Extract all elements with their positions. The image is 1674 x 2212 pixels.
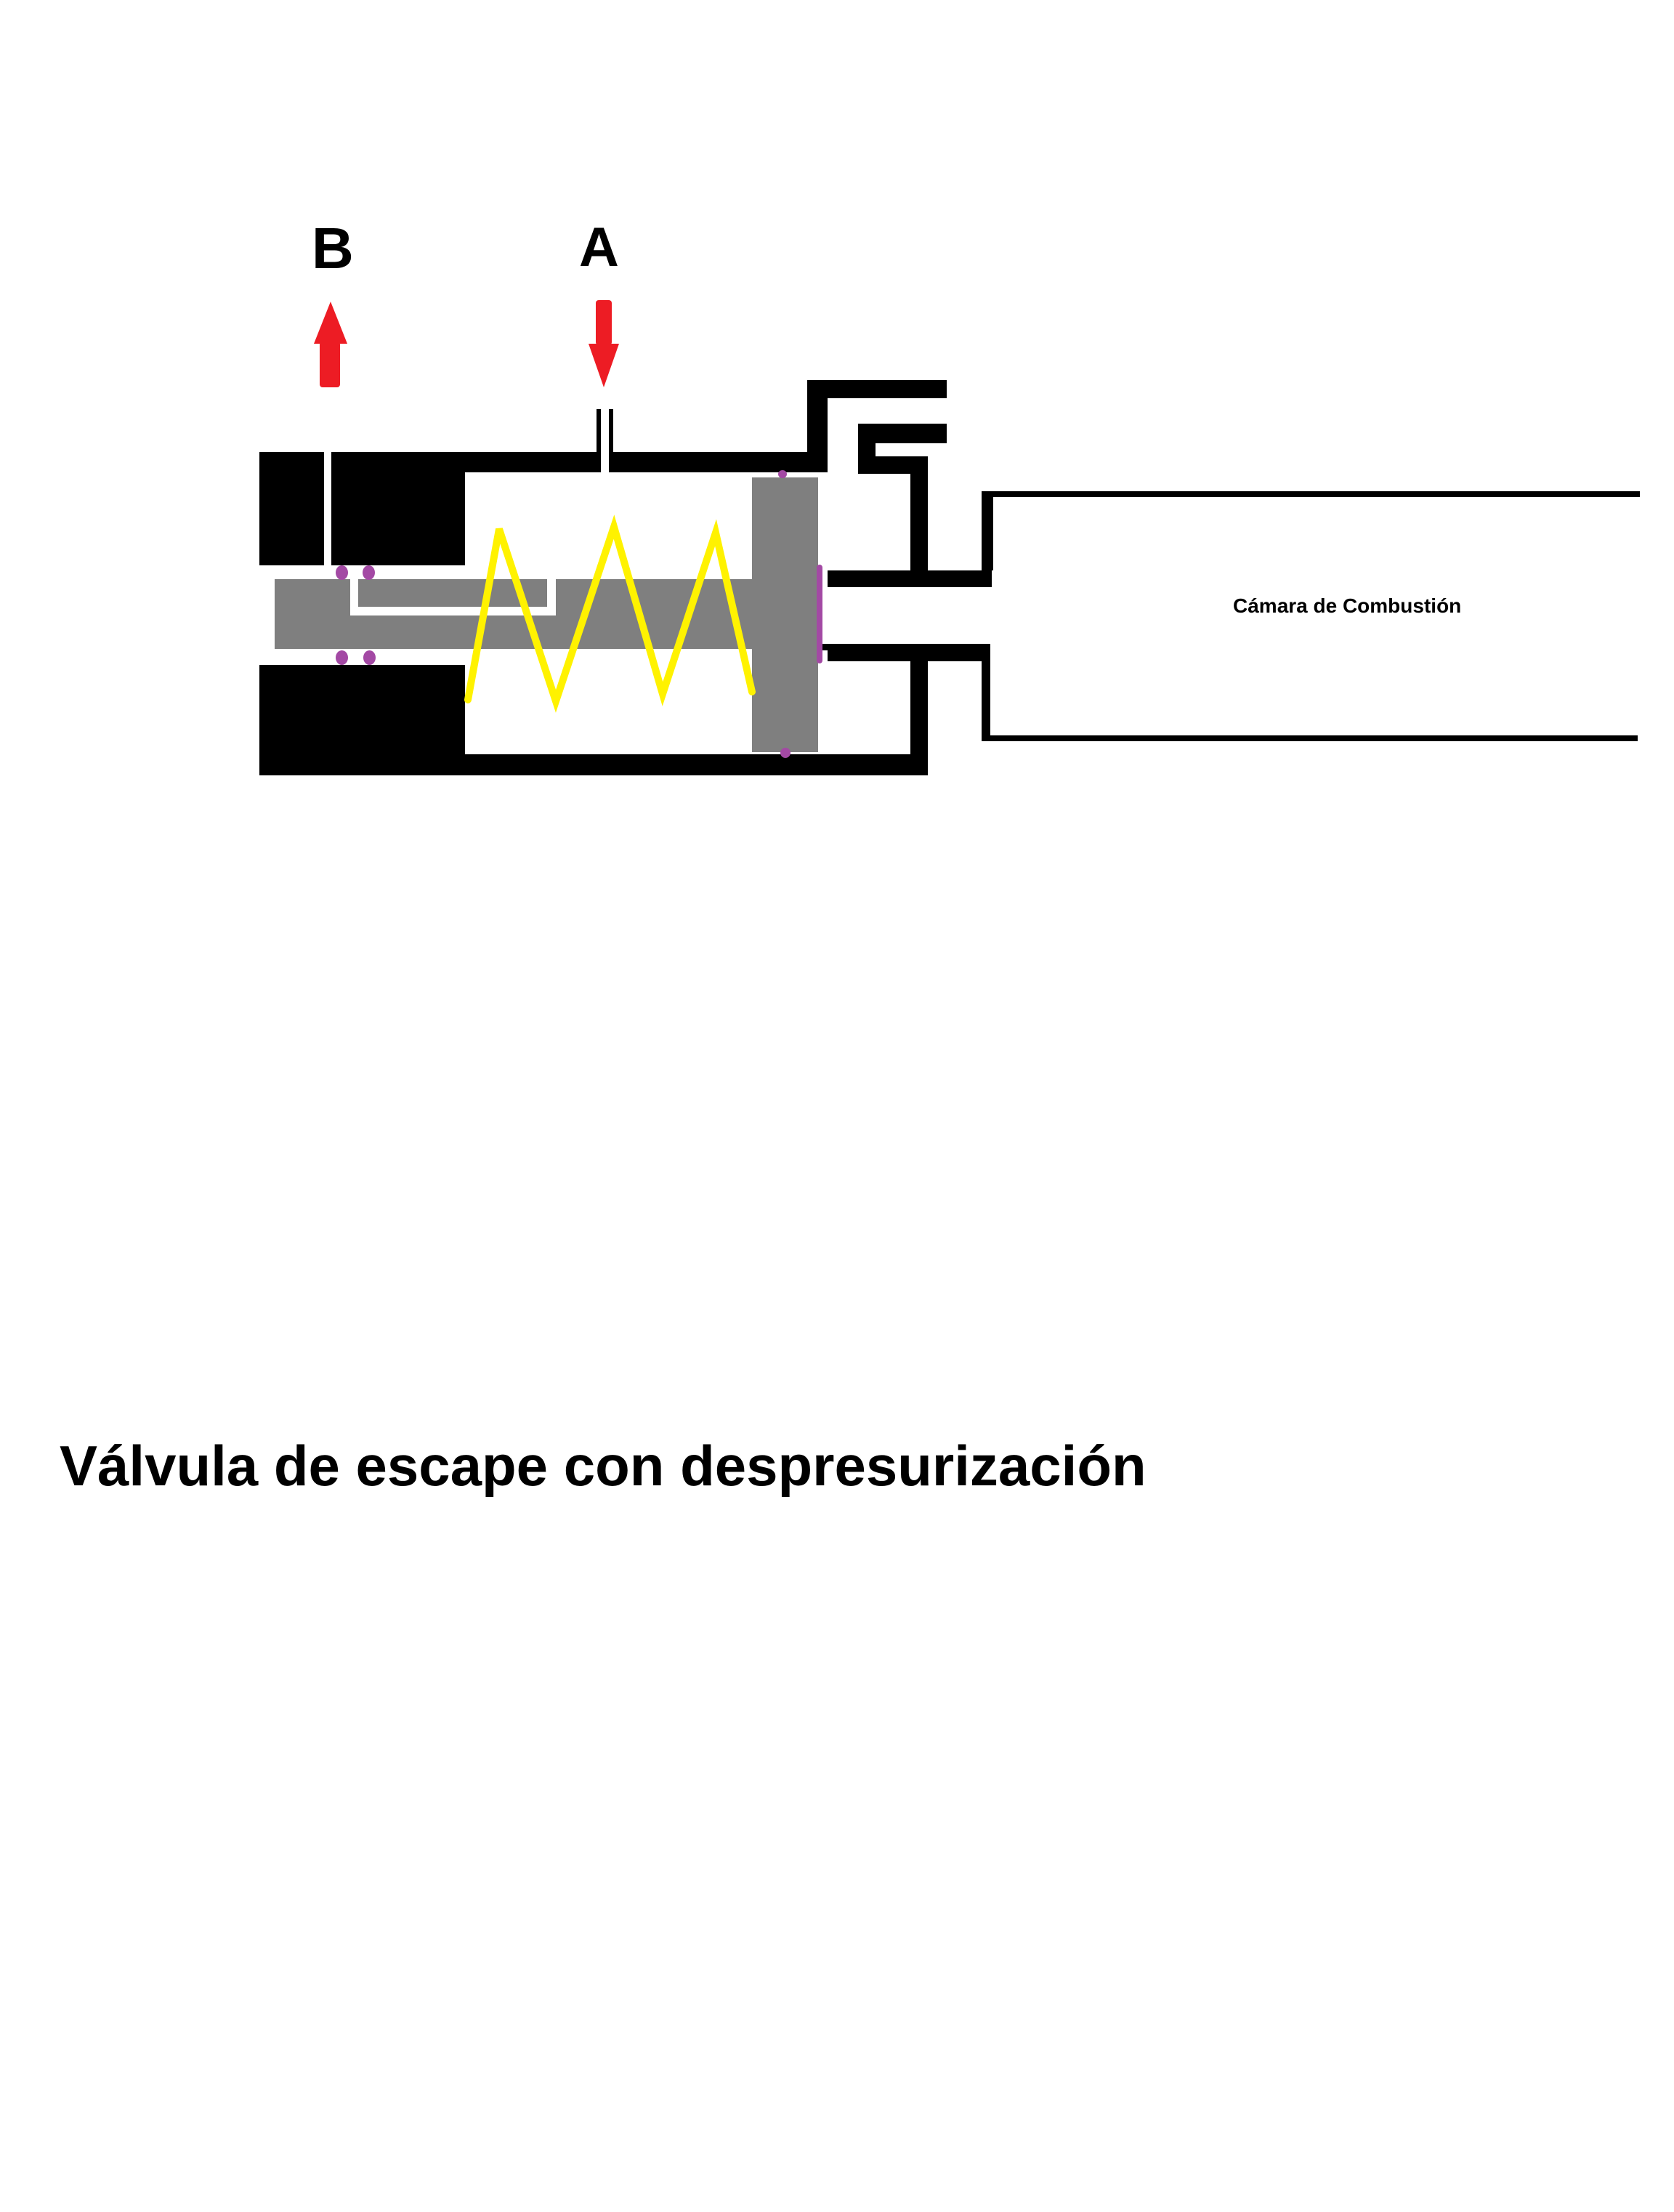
diagram-title: Válvula de escape con despresurización bbox=[60, 1437, 1147, 1494]
valve-seat-top-wall bbox=[828, 570, 992, 587]
chamber-bottom-wall bbox=[982, 735, 1638, 741]
inlet-a-tube-left-wall bbox=[597, 409, 601, 452]
outlet-duct-inner-bar bbox=[876, 456, 928, 474]
outlet-duct-riser bbox=[807, 380, 828, 472]
housing-bottom-left-block bbox=[259, 665, 465, 775]
chamber-neck-bottom-wall bbox=[982, 661, 990, 735]
inlet-a-tube-right-wall bbox=[609, 409, 613, 452]
spool-seal-oring bbox=[336, 565, 348, 580]
combustion-chamber-label: Cámara de Combustión bbox=[1233, 595, 1461, 618]
valve-seat-bottom-wall bbox=[828, 650, 990, 661]
return-spring bbox=[450, 509, 770, 719]
spool-seal-oring bbox=[363, 650, 376, 665]
chamber-neck-top-wall bbox=[982, 491, 993, 570]
housing-bottom-wall bbox=[465, 754, 928, 775]
valve-diagram-page: B A bbox=[0, 0, 1674, 2212]
port-b-label: B bbox=[312, 219, 354, 278]
housing-top-wall-left bbox=[465, 452, 601, 472]
outlet-duct-inner-riser bbox=[910, 474, 928, 570]
spool-seal-oring bbox=[363, 565, 375, 580]
housing-top-left-block bbox=[259, 452, 324, 565]
outlet-duct-top-bar bbox=[828, 380, 947, 398]
port-a-label: A bbox=[579, 220, 619, 275]
outlet-duct-mid-riser bbox=[858, 443, 876, 474]
chamber-top-wall bbox=[982, 491, 1640, 497]
plunger-guide-seal-top bbox=[778, 470, 787, 478]
valve-seat-bottom-wall bbox=[822, 644, 990, 650]
spool-seal-oring bbox=[336, 650, 348, 665]
housing-top-wall-right bbox=[609, 452, 828, 472]
outlet-duct-mid-bar bbox=[858, 424, 947, 443]
plunger-guide-seal-bottom bbox=[780, 748, 790, 758]
plunger-face-seal bbox=[817, 565, 822, 663]
housing-top-mid-block bbox=[331, 452, 465, 565]
